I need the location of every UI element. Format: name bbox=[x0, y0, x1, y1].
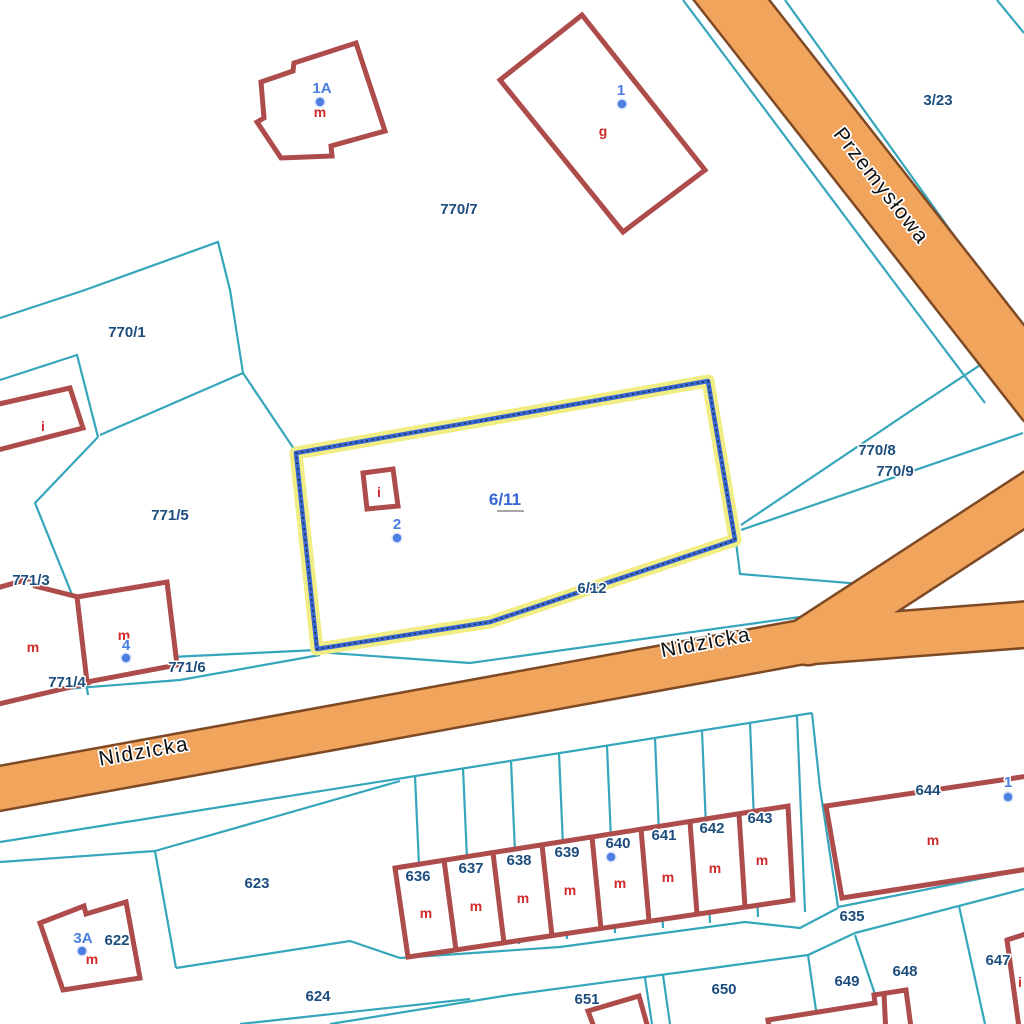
building-letter: m bbox=[927, 832, 939, 848]
building-letter: m bbox=[614, 875, 626, 891]
parcel-label-771-4: 771/4 bbox=[48, 674, 86, 691]
parcel-label-637: 637 bbox=[458, 860, 483, 877]
building-letter: m bbox=[470, 898, 482, 914]
address-label-1: 1 bbox=[1004, 774, 1012, 791]
road-nidzicka-branch-lower bbox=[812, 622, 1024, 641]
parcel-label-639: 639 bbox=[554, 844, 579, 861]
building-letter: m bbox=[420, 905, 432, 921]
building-letter: i bbox=[1018, 974, 1022, 990]
address-point-dot bbox=[617, 99, 627, 109]
parcel-label-640: 640 bbox=[605, 835, 630, 852]
building-letter: m bbox=[517, 890, 529, 906]
parcel-label-650: 650 bbox=[711, 981, 736, 998]
parcel-label-770-9: 770/9 bbox=[876, 463, 914, 480]
cadastral-map-canvas[interactable]: 17PrzemysłowaNidzickaNidzicka6/11770/73/… bbox=[0, 0, 1024, 1024]
parcel-label-770-8: 770/8 bbox=[858, 442, 896, 459]
address-label-3A: 3A bbox=[73, 930, 92, 947]
parcel-label-622: 622 bbox=[104, 932, 129, 949]
parcel-label-6-12: 6/12 bbox=[577, 580, 606, 597]
parcel-label-771-3: 771/3 bbox=[12, 572, 50, 589]
address-label-1: 1 bbox=[617, 82, 625, 99]
parcel-label-647: 647 bbox=[985, 952, 1010, 969]
parcel-label-641: 641 bbox=[651, 827, 676, 844]
address-point-dot bbox=[392, 533, 402, 543]
building-letter: m bbox=[709, 860, 721, 876]
address-point-dot bbox=[77, 946, 87, 956]
parcel-label-638: 638 bbox=[506, 852, 531, 869]
parcel-label-642: 642 bbox=[699, 820, 724, 837]
building-letter: m bbox=[27, 639, 39, 655]
parcel-label-636: 636 bbox=[405, 868, 430, 885]
parcel-label-3-23: 3/23 bbox=[923, 92, 952, 109]
building-letter: g bbox=[599, 123, 608, 139]
building-letter: i bbox=[41, 418, 45, 434]
parcel-label-651: 651 bbox=[574, 991, 599, 1008]
address-point-dot bbox=[1003, 792, 1013, 802]
building-letter: m bbox=[564, 882, 576, 898]
parcel-label-649: 649 bbox=[834, 973, 859, 990]
parcel-label-644: 644 bbox=[915, 782, 941, 799]
selected-parcel-label: 6/11 bbox=[489, 490, 521, 509]
address-label-4: 4 bbox=[122, 637, 131, 654]
cadastral-map-viewport[interactable]: 17PrzemysłowaNidzickaNidzicka6/11770/73/… bbox=[0, 0, 1024, 1024]
address-point-dot bbox=[121, 653, 131, 663]
building-letter: m bbox=[756, 852, 768, 868]
parcel-label-648: 648 bbox=[892, 963, 917, 980]
building-letter: m bbox=[86, 951, 98, 967]
parcel-label-771-5: 771/5 bbox=[151, 507, 189, 524]
building-outline-building-649-divider bbox=[884, 994, 886, 1024]
building-letter: m bbox=[662, 869, 674, 885]
address-point-dot bbox=[315, 97, 325, 107]
parcel-label-643: 643 bbox=[747, 810, 772, 827]
parcel-label-771-6: 771/6 bbox=[168, 659, 206, 676]
address-point-dot bbox=[606, 852, 616, 862]
parcel-label-770-7: 770/7 bbox=[440, 201, 478, 218]
parcel-label-770-1: 770/1 bbox=[108, 324, 146, 341]
parcel-label-635: 635 bbox=[839, 908, 864, 925]
parcel-label-623: 623 bbox=[244, 875, 269, 892]
parcel-label-624: 624 bbox=[305, 988, 331, 1005]
address-label-2: 2 bbox=[393, 516, 401, 533]
building-letter: i bbox=[377, 484, 381, 500]
address-label-1A: 1A bbox=[312, 80, 331, 97]
